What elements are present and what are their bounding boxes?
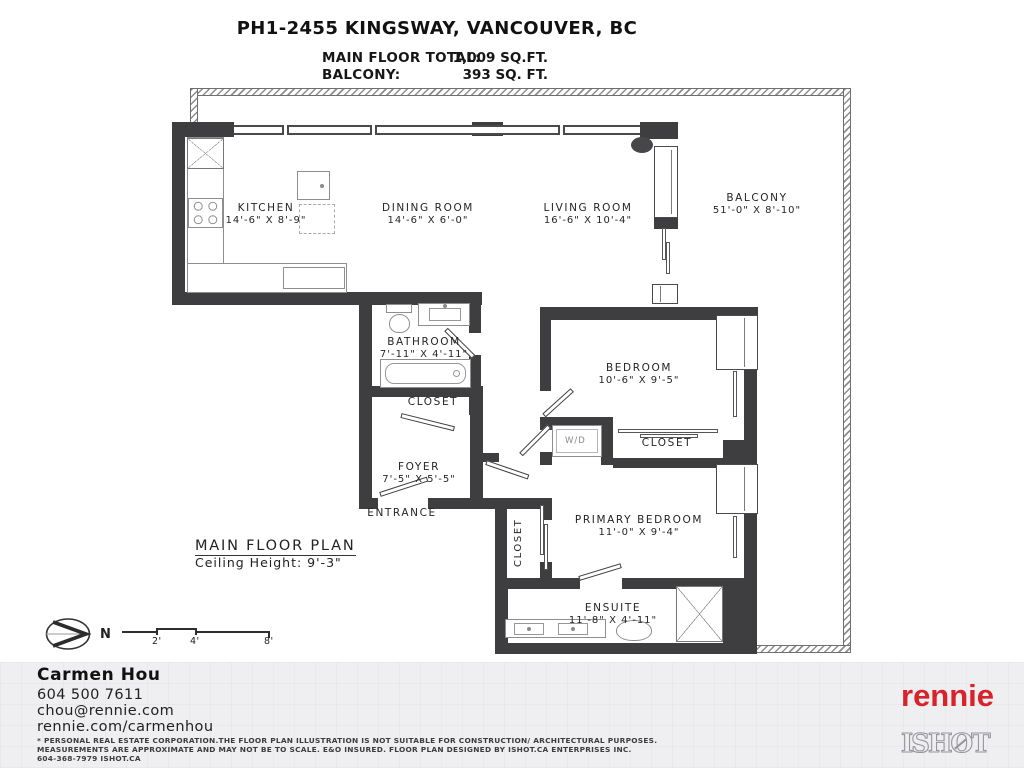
toilet-bowl bbox=[389, 314, 410, 333]
bedroom-door bbox=[542, 388, 574, 417]
rennie-logo: rennie bbox=[901, 680, 994, 711]
main-floor-total-value: 1,009 SQ.FT. bbox=[386, 50, 548, 66]
washer-dryer-label: W/D bbox=[565, 436, 586, 446]
room-label-primary-bedroom: PRIMARY BEDROOM 11'-0" X 9'-4" bbox=[575, 514, 703, 539]
sliding-door-line bbox=[666, 242, 670, 274]
disclaimer-line-2: MEASUREMENTS ARE APPROXIMATE AND MAY NOT… bbox=[37, 745, 632, 754]
room-label-bedroom-closet: CLOSET bbox=[642, 437, 692, 450]
wall-segment bbox=[469, 303, 481, 333]
north-compass-icon bbox=[44, 615, 98, 653]
entrance-label: ENTRANCE bbox=[367, 507, 437, 520]
wall-segment bbox=[613, 458, 723, 468]
ensuite-door bbox=[578, 563, 622, 581]
wall-segment bbox=[540, 315, 551, 391]
wall-segment bbox=[495, 498, 507, 590]
scale-tick-4ft: 4' bbox=[190, 636, 200, 647]
room-label-bathroom: BATHROOM 7'-11" X 4'-11" bbox=[380, 336, 468, 361]
planter bbox=[631, 137, 653, 153]
window-column bbox=[652, 284, 678, 304]
kitchen-island bbox=[297, 171, 330, 200]
kitchen-sink-counter bbox=[283, 267, 345, 289]
agent-website: rennie.com/carmenhou bbox=[37, 719, 213, 735]
agent-phone: 604 500 7611 bbox=[37, 687, 143, 703]
disclaimer-line-1: * PERSONAL REAL ESTATE CORPORATION.THE F… bbox=[37, 736, 657, 745]
ceiling-height-label: Ceiling Height: 9'-3" bbox=[195, 555, 342, 570]
wall-segment bbox=[540, 452, 552, 465]
window-mullion bbox=[558, 125, 565, 135]
toilet-tank bbox=[386, 304, 412, 313]
north-label: N bbox=[100, 627, 111, 642]
shower bbox=[676, 586, 723, 642]
fridge bbox=[187, 138, 224, 169]
wall-segment bbox=[640, 122, 678, 139]
disclaimer-line-3: 604-368-7979 ISHOT.CA bbox=[37, 754, 141, 763]
wall-segment bbox=[470, 386, 483, 500]
balcony-door-window bbox=[654, 146, 678, 218]
balcony-railing-top bbox=[193, 88, 851, 96]
room-label-hall-closet: CLOSET bbox=[408, 396, 458, 409]
room-label-living: LIVING ROOM 16'-6" X 10'-4" bbox=[543, 202, 632, 227]
window-mullion bbox=[282, 125, 289, 135]
bathroom-vanity bbox=[418, 303, 470, 326]
room-label-balcony: BALCONY 51'-0" X 8'-10" bbox=[713, 192, 801, 217]
room-label-kitchen: KITCHEN 14'-6" X 8'-9" bbox=[226, 202, 307, 227]
wall-segment bbox=[654, 217, 678, 229]
primary-bedroom-door bbox=[485, 460, 529, 479]
balcony-railing-right bbox=[843, 88, 851, 652]
footer: Carmen Hou 604 500 7611 chou@rennie.com … bbox=[0, 662, 1024, 768]
scale-tick-8ft: 8' bbox=[264, 636, 274, 647]
agent-name: Carmen Hou bbox=[37, 665, 161, 685]
wall-segment bbox=[601, 417, 613, 465]
balcony-area-value: 393 SQ. FT. bbox=[386, 67, 548, 83]
wall-segment bbox=[172, 122, 185, 305]
closet-sliding-line bbox=[544, 524, 548, 570]
window-band-top bbox=[234, 125, 640, 135]
hall-closet-door bbox=[400, 413, 455, 431]
scale-tick-2ft: 2' bbox=[152, 636, 162, 647]
curtain-line bbox=[733, 371, 737, 417]
room-label-primary-closet: CLOSET bbox=[513, 521, 524, 567]
floor-plan-page: PH1-2455 KINGSWAY, VANCOUVER, BC MAIN FL… bbox=[0, 0, 1024, 768]
wall-segment bbox=[172, 122, 234, 137]
wall-segment bbox=[495, 643, 757, 654]
primary-bedroom-window bbox=[716, 464, 758, 514]
room-label-foyer: FOYER 7'-5" X 5'-5" bbox=[382, 461, 456, 486]
closet-sliding-line bbox=[618, 429, 718, 433]
stove bbox=[188, 198, 223, 228]
curtain-line bbox=[733, 516, 737, 558]
wall-segment bbox=[359, 292, 372, 509]
page-title: PH1-2455 KINGSWAY, VANCOUVER, BC bbox=[237, 18, 638, 39]
agent-email: chou@rennie.com bbox=[37, 703, 174, 719]
bathtub bbox=[380, 359, 471, 388]
bedroom-window bbox=[716, 315, 758, 370]
balcony-railing-bottom bbox=[751, 645, 851, 653]
plan-title: MAIN FLOOR PLAN bbox=[195, 538, 356, 556]
window-mullion bbox=[370, 125, 377, 135]
room-label-ensuite: ENSUITE 11'-8" X 4'-11" bbox=[569, 602, 657, 627]
room-label-dining: DINING ROOM 14'-6" X 6'-0" bbox=[382, 202, 474, 227]
balcony-railing-left-stub bbox=[190, 88, 198, 124]
ishot-logo: ISHOT bbox=[901, 731, 989, 757]
room-label-bedroom: BEDROOM 10'-6" X 9'-5" bbox=[599, 362, 680, 387]
